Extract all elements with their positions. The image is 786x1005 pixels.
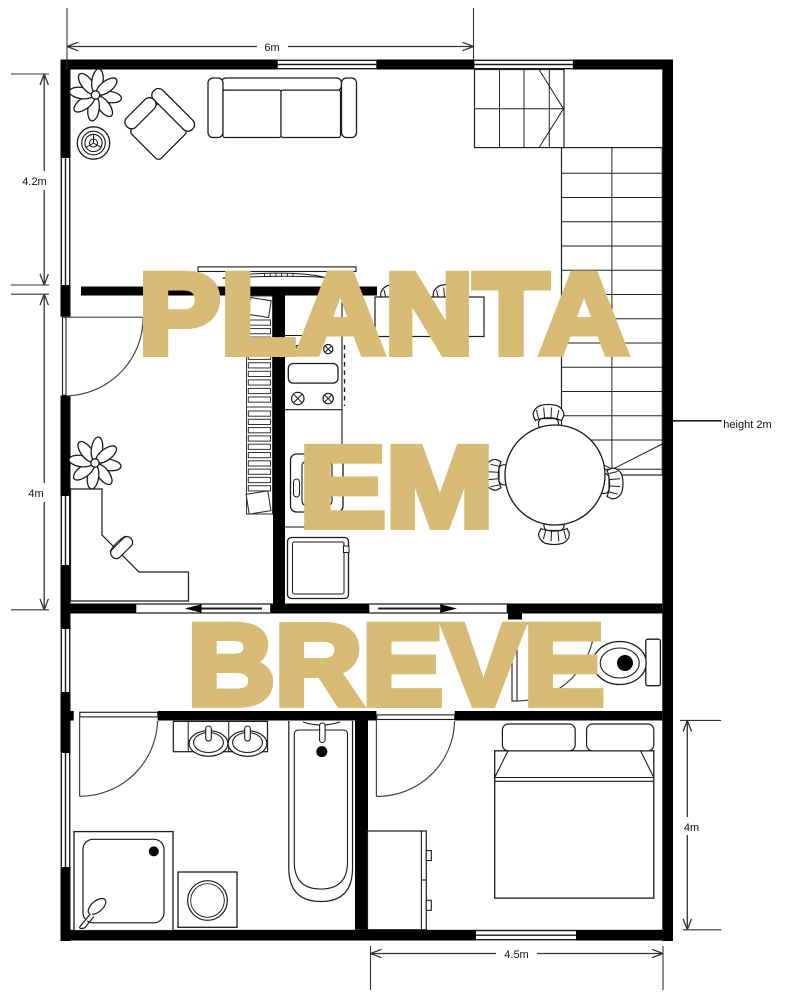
svg-text:height 2m: height 2m xyxy=(723,419,771,431)
svg-text:4m: 4m xyxy=(684,822,699,834)
svg-text:4.2m: 4.2m xyxy=(22,176,46,188)
svg-text:BREVE: BREVE xyxy=(188,602,605,730)
svg-text:6m: 6m xyxy=(264,42,279,54)
svg-text:4m: 4m xyxy=(28,488,43,500)
svg-text:EM: EM xyxy=(300,424,494,552)
svg-text:PLANTA: PLANTA xyxy=(139,251,629,379)
svg-text:4.5m: 4.5m xyxy=(504,949,528,961)
